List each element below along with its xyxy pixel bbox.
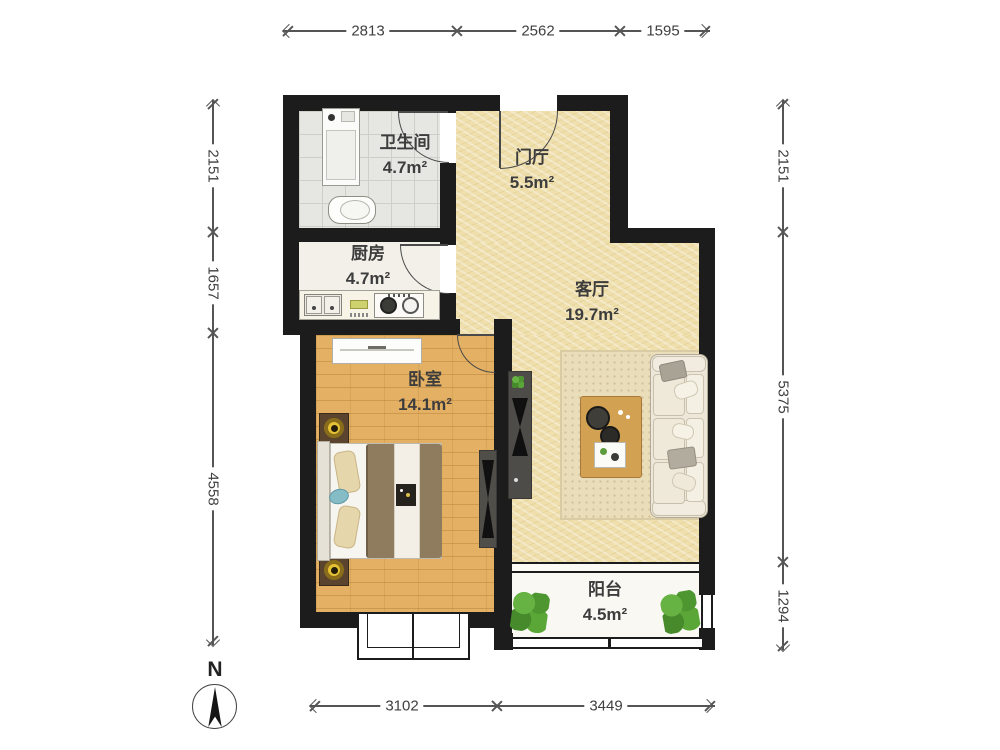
room-name: 客厅 xyxy=(537,278,647,303)
wardrobe-handle xyxy=(368,346,386,349)
wall-bedroom-bottom-left xyxy=(300,612,357,628)
tray-flower-icon xyxy=(600,448,607,455)
room-area: 4.7m² xyxy=(318,267,418,292)
toilet-bowl xyxy=(340,200,370,220)
stove-burner-left-icon xyxy=(380,297,397,314)
dish-rack xyxy=(350,313,368,317)
sofa-blanket xyxy=(667,446,698,470)
bed-headboard xyxy=(317,441,330,561)
stove-burner-right-icon xyxy=(402,297,419,314)
room-label-bathroom: 卫生间 4.7m² xyxy=(350,131,460,180)
dim-label: 1595 xyxy=(641,23,684,40)
room-label-balcony: 阳台 4.5m² xyxy=(553,578,657,627)
bedroom-door-threshold xyxy=(456,319,494,335)
dim-label: 3449 xyxy=(584,698,627,715)
floor-plan: 卫生间 4.7m² 门厅 5.5m² 厨房 4.7m² 客厅 19.7m² 卧室… xyxy=(0,0,1000,750)
dim-label: 5375 xyxy=(775,375,792,418)
dim-label: 2562 xyxy=(516,23,559,40)
room-name: 卧室 xyxy=(373,368,477,393)
dim-label: 2813 xyxy=(346,23,389,40)
room-area: 4.7m² xyxy=(350,156,460,181)
tray-dish-icon xyxy=(611,453,619,461)
cutting-board xyxy=(350,300,368,309)
dim-label: 2151 xyxy=(775,144,792,187)
wardrobe xyxy=(332,338,422,364)
table-dot-2 xyxy=(626,415,630,419)
bay-window-mullion xyxy=(412,612,414,660)
balcony-railing-tick xyxy=(608,637,611,649)
wall-top-left xyxy=(283,95,500,111)
dim-label: 1294 xyxy=(775,584,792,627)
dim-label: 4558 xyxy=(205,467,222,510)
sink-drain-left-icon xyxy=(312,306,316,310)
bed-tray-dot-white xyxy=(400,489,403,492)
dim-label: 3102 xyxy=(380,698,423,715)
room-area: 19.7m² xyxy=(537,303,647,328)
table-dot-1 xyxy=(618,410,623,415)
sink-basin-right xyxy=(324,296,340,314)
plant-icon xyxy=(509,590,550,635)
wall-bath-kitchen xyxy=(299,228,456,242)
balcony-side-window xyxy=(701,595,713,628)
wardrobe-rail xyxy=(340,349,414,351)
room-name: 卫生间 xyxy=(350,131,460,156)
compass-north-label: N xyxy=(207,658,222,682)
lamp-center xyxy=(331,567,338,574)
sink-drain-right-icon xyxy=(330,306,334,310)
room-name: 门厅 xyxy=(482,146,582,171)
wall-hall-right xyxy=(610,95,628,243)
nightstand-top xyxy=(319,413,349,444)
wall-left-kitchen xyxy=(283,95,299,335)
vanity-drain-icon xyxy=(328,114,335,121)
wall-balcony-right-top xyxy=(699,565,715,595)
room-area: 4.5m² xyxy=(553,603,657,628)
vanity-soap-tray xyxy=(341,111,355,122)
room-label-hall: 门厅 5.5m² xyxy=(482,146,582,195)
room-area: 5.5m² xyxy=(482,171,582,196)
balcony-railing-end-right xyxy=(702,633,715,650)
wall-kitchen-bedroom xyxy=(283,319,460,335)
wall-left-bedroom xyxy=(300,319,316,628)
small-plant-icon xyxy=(512,376,524,388)
room-area: 14.1m² xyxy=(373,393,477,418)
lamp-center xyxy=(331,425,338,432)
balcony-railing-end-left xyxy=(505,633,513,650)
balcony-sliding-window xyxy=(512,562,699,573)
sink-basin-left xyxy=(306,296,322,314)
bed-tray xyxy=(396,484,416,506)
room-name: 厨房 xyxy=(318,242,418,267)
room-label-living: 客厅 19.7m² xyxy=(537,278,647,327)
tv-panel-dot xyxy=(514,478,518,482)
wall-bedroom-bottom-right xyxy=(470,612,510,628)
room-name: 阳台 xyxy=(553,578,657,603)
dim-label: 2151 xyxy=(205,144,222,187)
dim-label: 1657 xyxy=(205,261,222,304)
table-tray xyxy=(594,442,626,468)
room-label-bedroom: 卧室 14.1m² xyxy=(373,368,477,417)
bed-tray-dot-gold xyxy=(406,493,410,497)
stove-knobs xyxy=(388,294,412,297)
plant-icon xyxy=(659,589,701,635)
room-label-kitchen: 厨房 4.7m² xyxy=(318,242,418,291)
